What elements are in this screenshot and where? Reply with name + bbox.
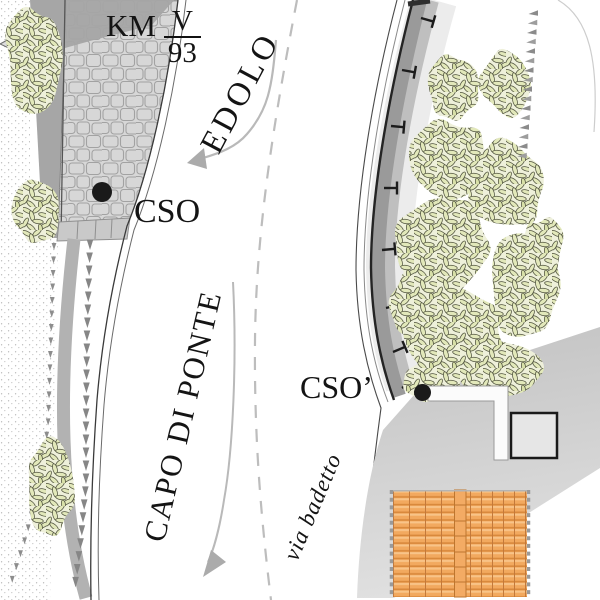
km-fraction-denominator: 93 xyxy=(168,38,197,68)
cso-marker-dot xyxy=(92,182,112,202)
point-label-cso-prime: CSO’ xyxy=(300,369,373,406)
km-fraction-numerator: V xyxy=(164,6,201,38)
km-label: KM xyxy=(106,8,156,44)
retaining-wall-path xyxy=(63,239,86,598)
right-edge-curve xyxy=(558,0,595,132)
cso-prime-marker-dot xyxy=(414,384,431,401)
roof-building xyxy=(392,490,529,597)
square-building xyxy=(511,413,557,458)
point-label-cso: CSO xyxy=(134,193,200,231)
km-fraction: V 93 xyxy=(164,6,201,69)
roof-ridge xyxy=(455,490,467,597)
km-marker: KM V 93 xyxy=(106,8,201,69)
site-map-drawing: { "map": { "km_marker": { "label": "KM",… xyxy=(0,0,600,600)
